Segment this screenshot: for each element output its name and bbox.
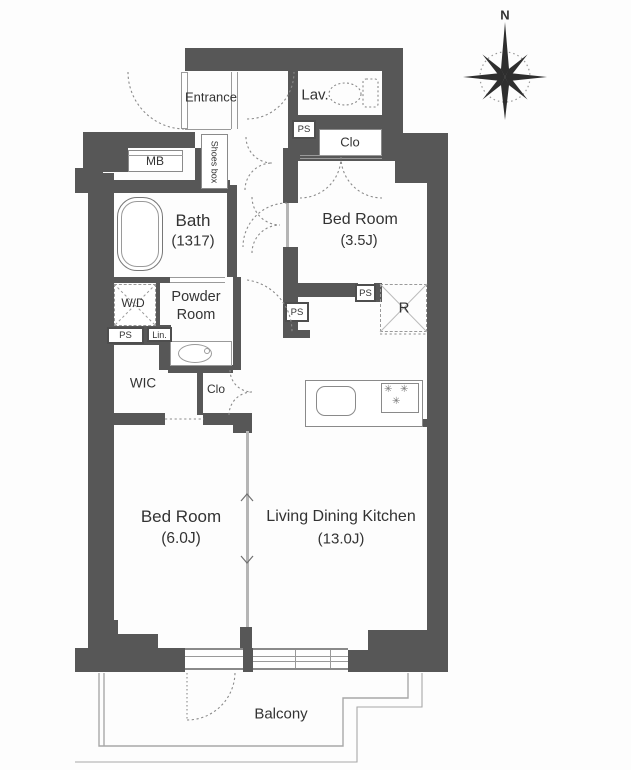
lavatory-label: Lav. [301,87,328,104]
balcony-outline [75,673,422,762]
compass-rose [463,22,547,120]
refrigerator-label: R [399,300,410,317]
ldk-size: (13.0J) [318,531,365,548]
wic-label: WIC [130,376,156,391]
washer-dryer-label: W/D [121,296,144,310]
entrance-label: Entrance [185,90,237,105]
plan-overlay [0,0,631,770]
powder-room-label-2: Room [177,307,216,323]
bedroom-3-5-size: (3.5J) [340,233,377,249]
bedroom-6-0-size: (6.0J) [161,530,201,548]
bath-label: Bath [176,211,211,231]
closet-upper-label: Clo [340,135,360,150]
door-swing-arcs [128,72,427,720]
bedroom-3-5-label: Bed Room [322,211,398,229]
powder-room-label-1: Powder [171,289,220,305]
bath-size: (1317) [171,233,214,250]
partition-arrows [241,494,253,563]
toilet-icon [329,79,378,107]
compass-points [463,22,547,120]
compass-north-label: N [500,8,509,23]
balcony-label: Balcony [254,706,307,723]
floor-plan: Shoes box ✳ ✳ ✳ PS PS PS PS L [0,0,631,770]
closet-lower-label: Clo [207,382,225,396]
bedroom-6-0-label: Bed Room [141,507,221,527]
ldk-label: Living Dining Kitchen [266,508,415,526]
vanity-faucet [205,349,210,354]
meter-box-label: MB [146,154,164,168]
